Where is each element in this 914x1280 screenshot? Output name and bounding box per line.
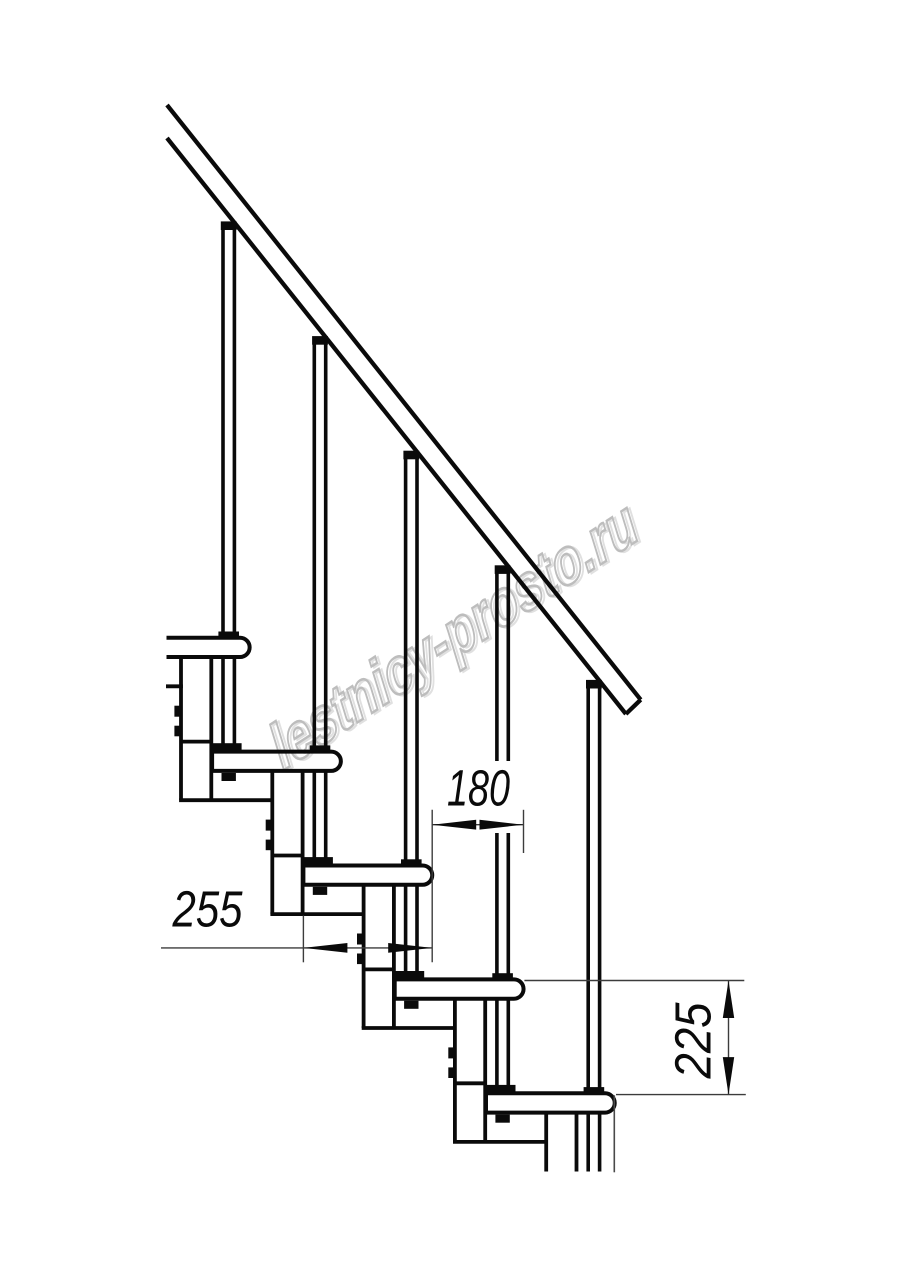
svg-text:225: 225: [665, 1002, 722, 1079]
svg-text:255: 255: [172, 881, 243, 938]
svg-text:180: 180: [447, 760, 510, 817]
